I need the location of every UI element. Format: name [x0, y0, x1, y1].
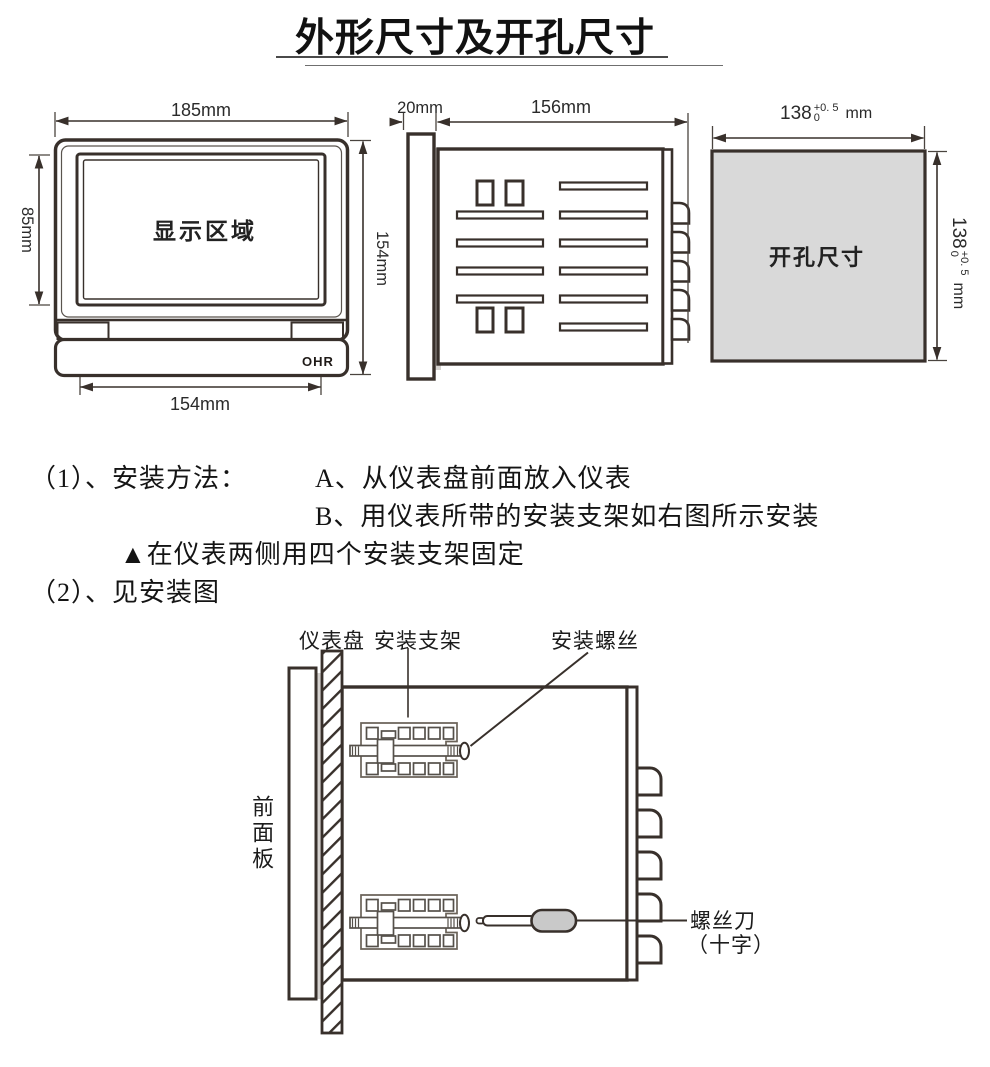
cutout-dim-value: 138: [780, 103, 812, 125]
mounting-bracket-top: [350, 723, 469, 777]
side-bezel: [408, 134, 434, 379]
cutout-height-dim-label: 138+0. 50mm: [947, 217, 969, 309]
side-terminal-strip: [663, 150, 672, 364]
install-figure-drawing: [289, 648, 687, 1033]
cutout-dim-unit-vertical: mm: [949, 282, 967, 309]
side-body: [438, 149, 663, 364]
side-bezel-depth-dim-label: 20mm: [395, 99, 445, 118]
instruction-step-a: A、从仪表盘前面放入仪表: [315, 458, 632, 495]
mounting-bracket-bottom: [350, 895, 469, 949]
screwdriver-handle: [532, 910, 577, 932]
cutout-dim-tol-minus-vertical: 0: [949, 251, 959, 276]
panel-hatch-bar: [322, 651, 342, 1033]
title-underline-2: [305, 65, 723, 66]
front-display-height-dim-label: 85mm: [17, 207, 36, 253]
terminal-clips: [637, 768, 661, 963]
title-underline-1: [276, 56, 668, 58]
front-height-dim-label: 154mm: [372, 231, 391, 286]
front-view-drawing: [29, 112, 371, 395]
cutout-label: 开孔尺寸: [769, 240, 865, 272]
cutout-dim-tol-plus-vertical: +0. 5: [959, 251, 969, 276]
instruction-step-b: B、用仪表所带的安装支架如右图所示安装: [315, 496, 819, 533]
side-view-drawing: [391, 113, 689, 379]
instruction-note: ▲在仪表两侧用四个安装支架固定: [120, 534, 525, 571]
cutout-dim-tol-minus: 0: [814, 113, 839, 123]
front-panel: [289, 668, 316, 999]
instruction-item2: （2）、见安装图: [30, 572, 220, 609]
page-title: 外形尺寸及开孔尺寸: [295, 7, 655, 63]
front-width-dim-label: 185mm: [161, 100, 241, 121]
bracket-label: 安装支架: [374, 625, 462, 655]
cutout-width-dim-label: 138+0. 50mm: [780, 103, 872, 125]
cutout-dim-unit: mm: [845, 105, 872, 123]
display-area-label: 显示区域: [153, 212, 257, 246]
side-terminal-clips: [672, 203, 689, 340]
screw-label: 安装螺丝: [551, 625, 639, 655]
panel-label: 仪表盘: [299, 625, 365, 655]
front-bottom-width-dim-label: 154mm: [160, 394, 240, 415]
screwdriver-shaft: [483, 916, 535, 926]
page: 外形尺寸及开孔尺寸 185mm 85mm 154mm 154mm 显示区域 OH…: [0, 0, 990, 1067]
instruction-item1: （1）、安装方法：: [30, 458, 247, 495]
brand-logo: OHR: [302, 354, 334, 369]
front-panel-label: 前面板: [250, 795, 273, 873]
cutout-dim-value-vertical: 138: [947, 217, 969, 249]
side-body-depth-dim-label: 156mm: [521, 97, 601, 118]
screwdriver-type-label: （十字）: [687, 929, 775, 959]
